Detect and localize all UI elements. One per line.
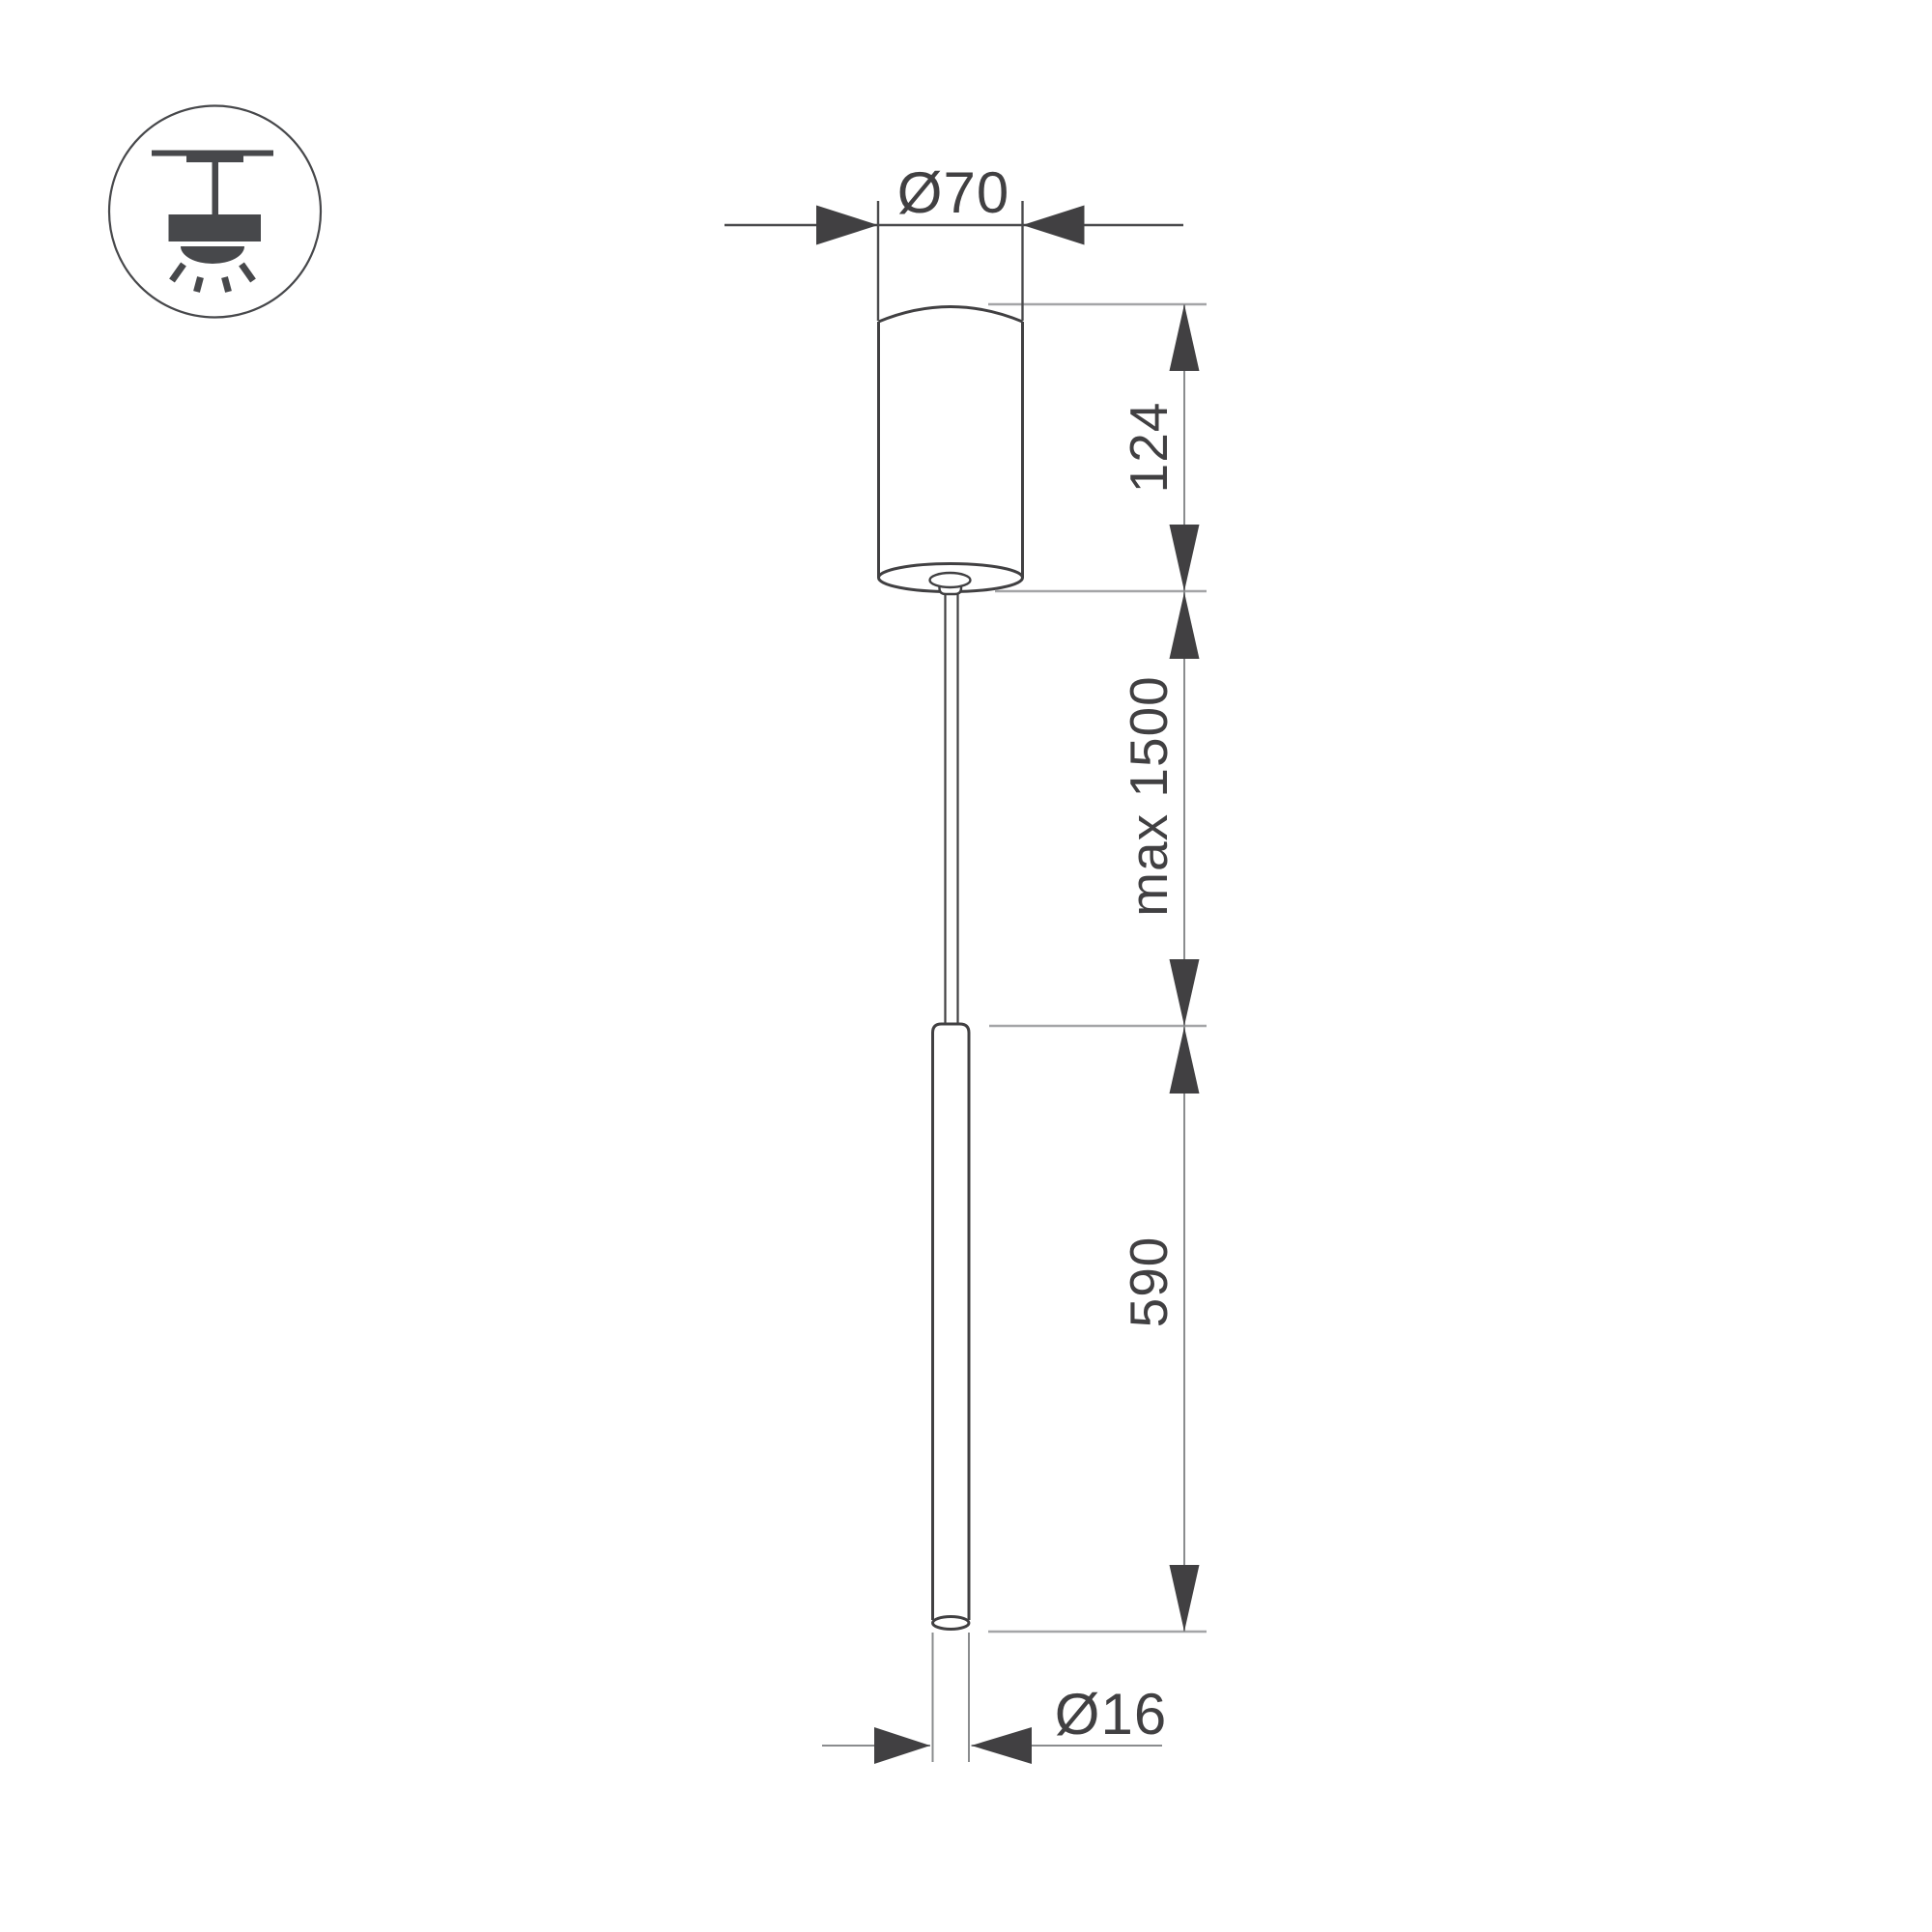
tube-bottom-cap: [933, 1617, 970, 1630]
dimension-canopy-height: 124: [1119, 304, 1200, 591]
canopy-top-arc: [879, 307, 1023, 323]
label-canopy-diameter: Ø70: [897, 160, 1009, 225]
label-canopy-height: 124: [1119, 402, 1179, 494]
dimension-canopy-diameter: Ø70: [724, 160, 1183, 321]
tube-light: [933, 1024, 970, 1630]
arrow-down-icon: [1170, 959, 1200, 1026]
label-tube-length: 590: [1119, 1236, 1179, 1328]
dimension-drawing: Ø70 124 max 1500 590 Ø16: [0, 0, 1932, 1932]
dimension-suspension-max: max 1500: [1119, 592, 1200, 1026]
arrow-up-icon: [1170, 592, 1200, 659]
dimension-tube-length: 590: [1119, 1027, 1200, 1632]
vertical-dimension-column: 124 max 1500 590: [1119, 304, 1200, 1632]
label-tube-diameter: Ø16: [1055, 1682, 1167, 1747]
arrow-right-icon: [874, 1727, 930, 1764]
label-suspension-max: max 1500: [1119, 675, 1179, 917]
arrow-down-icon: [1170, 525, 1200, 591]
icon-light-rays: [172, 265, 253, 293]
icon-light-dome: [181, 246, 244, 264]
arrow-down-icon: [1170, 1565, 1200, 1632]
arrow-left-icon: [1023, 206, 1085, 245]
tube-body: [933, 1024, 970, 1620]
arrow-up-icon: [1170, 304, 1200, 371]
arrow-left-icon: [972, 1727, 1033, 1764]
dimension-tube-diameter: Ø16: [822, 1633, 1167, 1764]
canopy: [879, 307, 1023, 592]
arrow-up-icon: [1170, 1027, 1200, 1094]
icon-mount-plate: [186, 156, 243, 163]
suspension-wire: [946, 589, 958, 1025]
grommet-washer: [930, 573, 971, 587]
ceiling-mounted-pendant-light-icon: [109, 106, 321, 318]
icon-stem: [213, 162, 219, 214]
arrow-right-icon: [816, 206, 878, 245]
icon-ceiling-bar: [152, 151, 273, 156]
pendant-luminaire-drawing: [879, 307, 1023, 1630]
icon-lamp-body: [169, 214, 262, 241]
